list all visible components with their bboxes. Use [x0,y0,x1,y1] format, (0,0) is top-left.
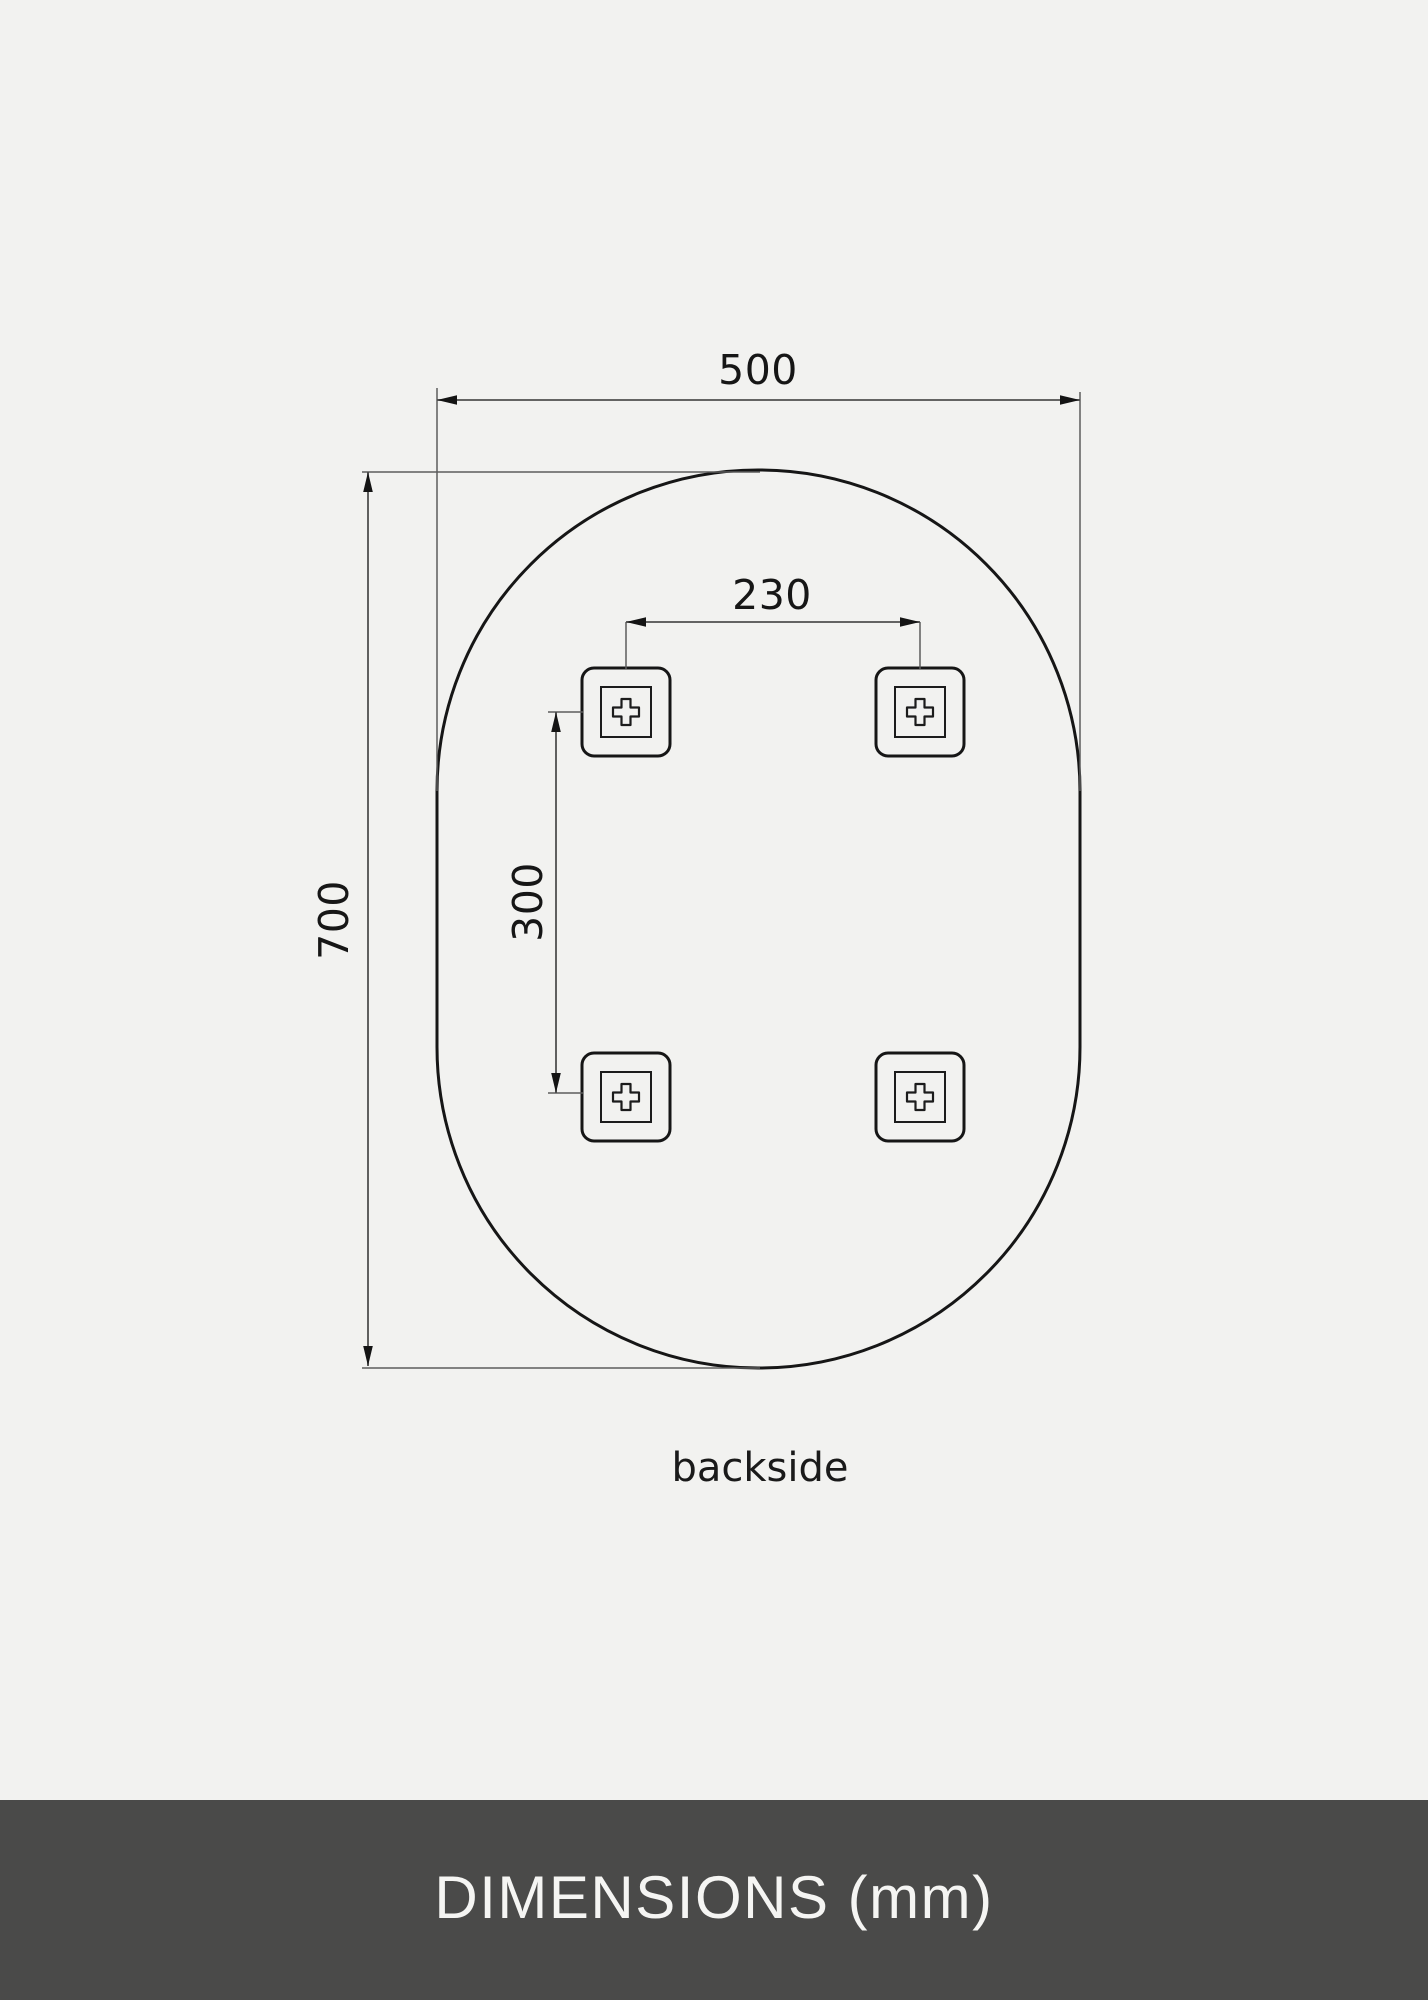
view-label-backside: backside [671,1445,848,1491]
dimension-label-bracket-spacing-horizontal: 230 [732,571,812,619]
mounting-bracket-top-left [582,668,670,756]
mounting-bracket-bottom-right [876,1053,964,1141]
dimension-label-bracket-spacing-vertical: 300 [504,862,552,942]
dimension-label-width: 500 [718,346,798,394]
dimension-label-height: 700 [310,880,358,960]
mirror-dimension-drawing [0,0,1428,1800]
mounting-bracket-top-right [876,668,964,756]
mounting-bracket-bottom-left [582,1053,670,1141]
footer-bar: DIMENSIONS (mm) [0,1800,1428,2000]
dimension-diagram-page: 500 230 700 300 backside DIMENSIONS (mm) [0,0,1428,2000]
footer-title: DIMENSIONS (mm) [434,1863,993,1932]
